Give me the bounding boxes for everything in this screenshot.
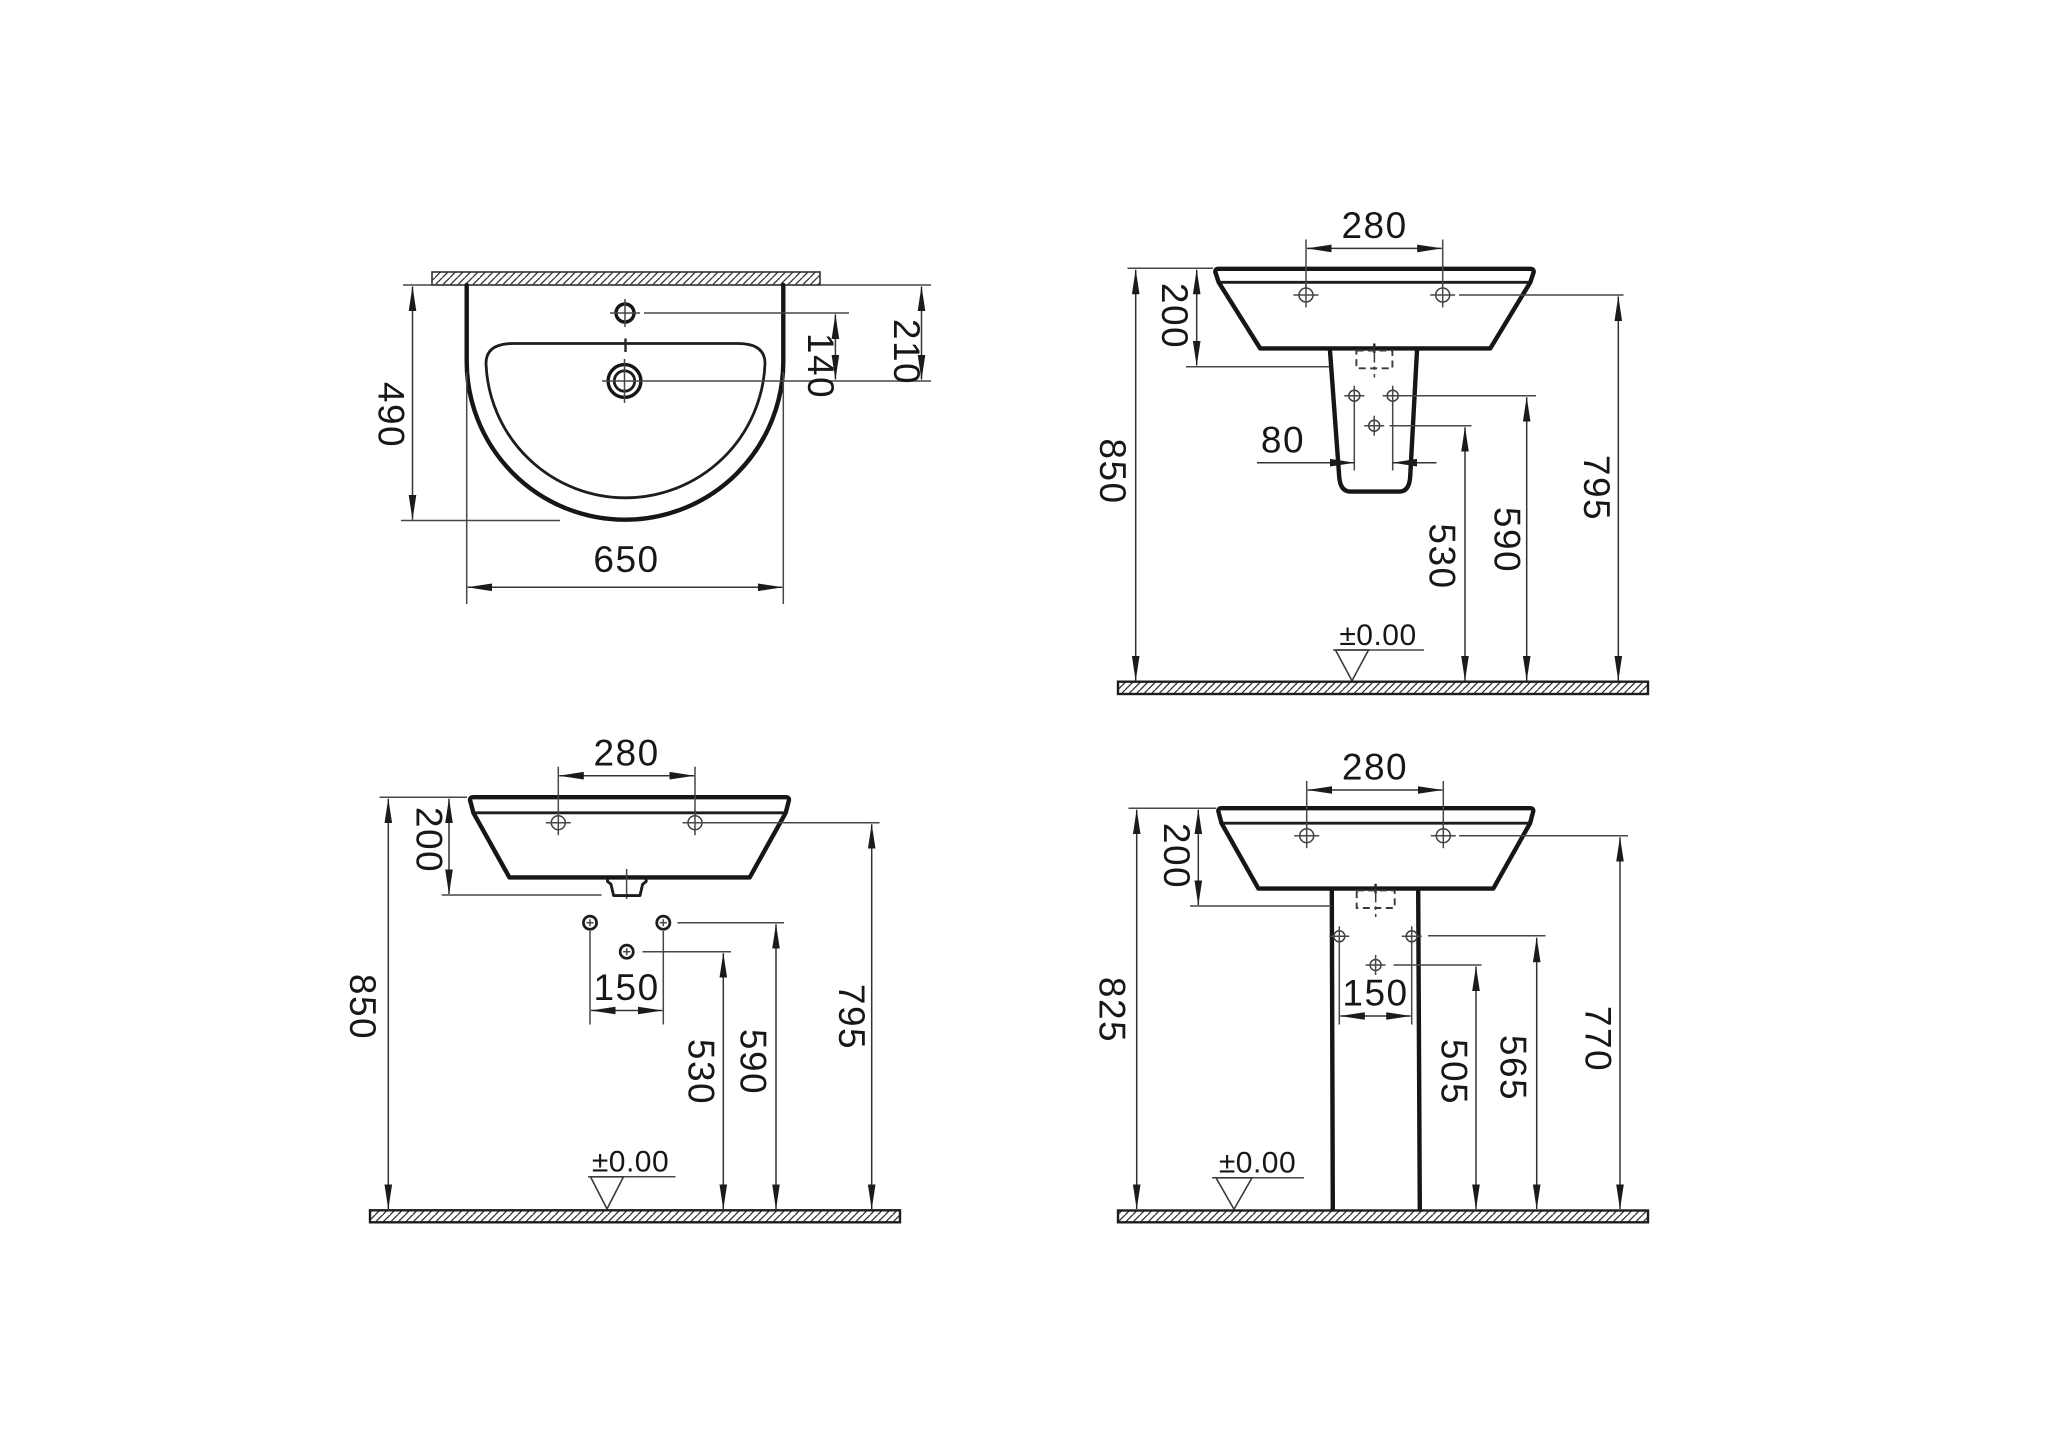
dim-ped-hole-spacing: 80 [1261,420,1305,461]
dim-hole-spacing: 280 [1342,747,1408,788]
dim-basin-height: 200 [1154,283,1195,349]
basin-outline-front [1215,269,1533,349]
dim-fix-spacing: 150 [1342,973,1408,1014]
dim-total-height: 825 [1091,977,1132,1043]
inner-bowl-outline [486,344,765,498]
dim-total-height: 850 [342,974,383,1040]
pedestal-fixing-hole [1344,386,1364,406]
datum-triangle [1216,1178,1252,1210]
pedestal-left-edge [1332,891,1333,1210]
datum-label: ±0.00 [1219,1147,1296,1180]
dim-drain-offset: 210 [886,319,927,385]
floor-section [1118,682,1648,694]
dim-rim-fix-height: 795 [831,984,872,1050]
wall-fixing-hole [583,916,596,929]
dim-drain-height: 530 [681,1039,722,1105]
dim-basin-height: 200 [1156,823,1197,889]
pedestal-right-edge [1418,891,1420,1210]
basin-outline-front [1218,808,1533,888]
view-plan: 490 650 140 210 [370,272,931,604]
floor-section [370,1210,900,1222]
dim-rim-fix-height: 770 [1577,1006,1618,1072]
datum-label: ±0.00 [1339,619,1416,652]
datum-triangle [591,1177,624,1209]
pedestal-drain-hole [1364,416,1384,436]
basin-outline-front [470,797,789,877]
dim-hole-spacing: 280 [593,733,659,774]
dim-wall-fix-height: 590 [733,1029,774,1095]
dim-total-height: 850 [1092,438,1133,504]
dim-ped-fix-low: 505 [1433,1039,1474,1105]
dim-ped-fix-high: 565 [1492,1035,1533,1101]
dim-drain-height: 530 [1422,523,1463,589]
dim-tap-offset: 140 [800,333,841,399]
view-wall-hung: 280 850 200 795 590 530 150 ±0.00 [342,733,900,1223]
wall-drain-hole [620,945,633,958]
datum-triangle [1336,650,1369,681]
pedestal-fixing-hole [1383,386,1403,406]
dim-depth: 490 [370,382,411,448]
view-full-pedestal: 280 825 200 770 565 505 150 ±0.00 [1091,747,1648,1223]
view-semi-pedestal: 280 850 200 80 795 590 530 ±0.00 [1092,205,1648,694]
wall-fixing-hole [657,916,670,929]
dim-width: 650 [593,539,659,580]
floor-section [1118,1211,1648,1223]
dim-ped-fix-height: 590 [1486,507,1527,573]
dim-hole-spacing: 280 [1341,205,1407,246]
technical-drawing-sheet: 490 650 140 210 280 850 200 [0,0,2048,1449]
dim-rim-fix-height: 795 [1576,455,1617,521]
dim-basin-height: 200 [408,807,449,873]
wall-section-hatch [432,272,820,285]
dim-fix-spacing: 150 [593,967,659,1008]
drawing-canvas: 490 650 140 210 280 850 200 [0,0,2048,1449]
datum-label: ±0.00 [592,1146,669,1179]
